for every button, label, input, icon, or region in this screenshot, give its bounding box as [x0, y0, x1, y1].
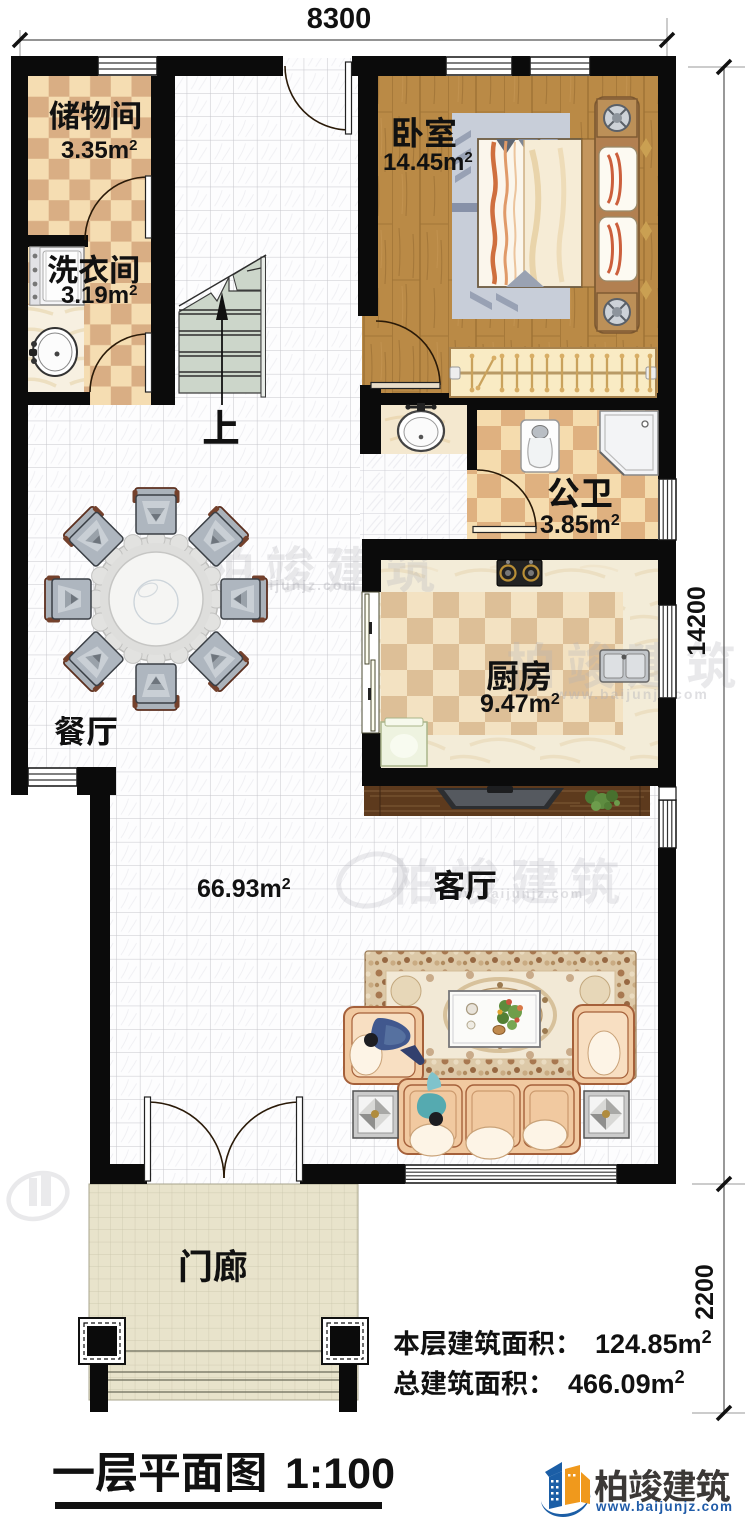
svg-text:466.09m2: 466.09m2	[568, 1367, 685, 1399]
svg-text:1:100: 1:100	[285, 1450, 395, 1498]
svg-text:www.baijunjz.com: www.baijunjz.com	[595, 1499, 733, 1514]
svg-text:66.93m2: 66.93m2	[197, 875, 291, 903]
svg-text:124.85m2: 124.85m2	[595, 1327, 712, 1359]
svg-text:9.47m2: 9.47m2	[480, 690, 560, 718]
svg-text:8300: 8300	[307, 3, 372, 35]
svg-text:www.baijunjz.com: www.baijunjz.com	[555, 686, 709, 702]
svg-text:3.85m2: 3.85m2	[540, 511, 620, 539]
svg-text:3.19m2: 3.19m2	[61, 282, 137, 309]
svg-text:14.45m2: 14.45m2	[383, 149, 473, 176]
svg-text:2200: 2200	[691, 1264, 719, 1320]
svg-text:3.35m2: 3.35m2	[61, 137, 137, 164]
svg-text:14200: 14200	[683, 586, 711, 656]
